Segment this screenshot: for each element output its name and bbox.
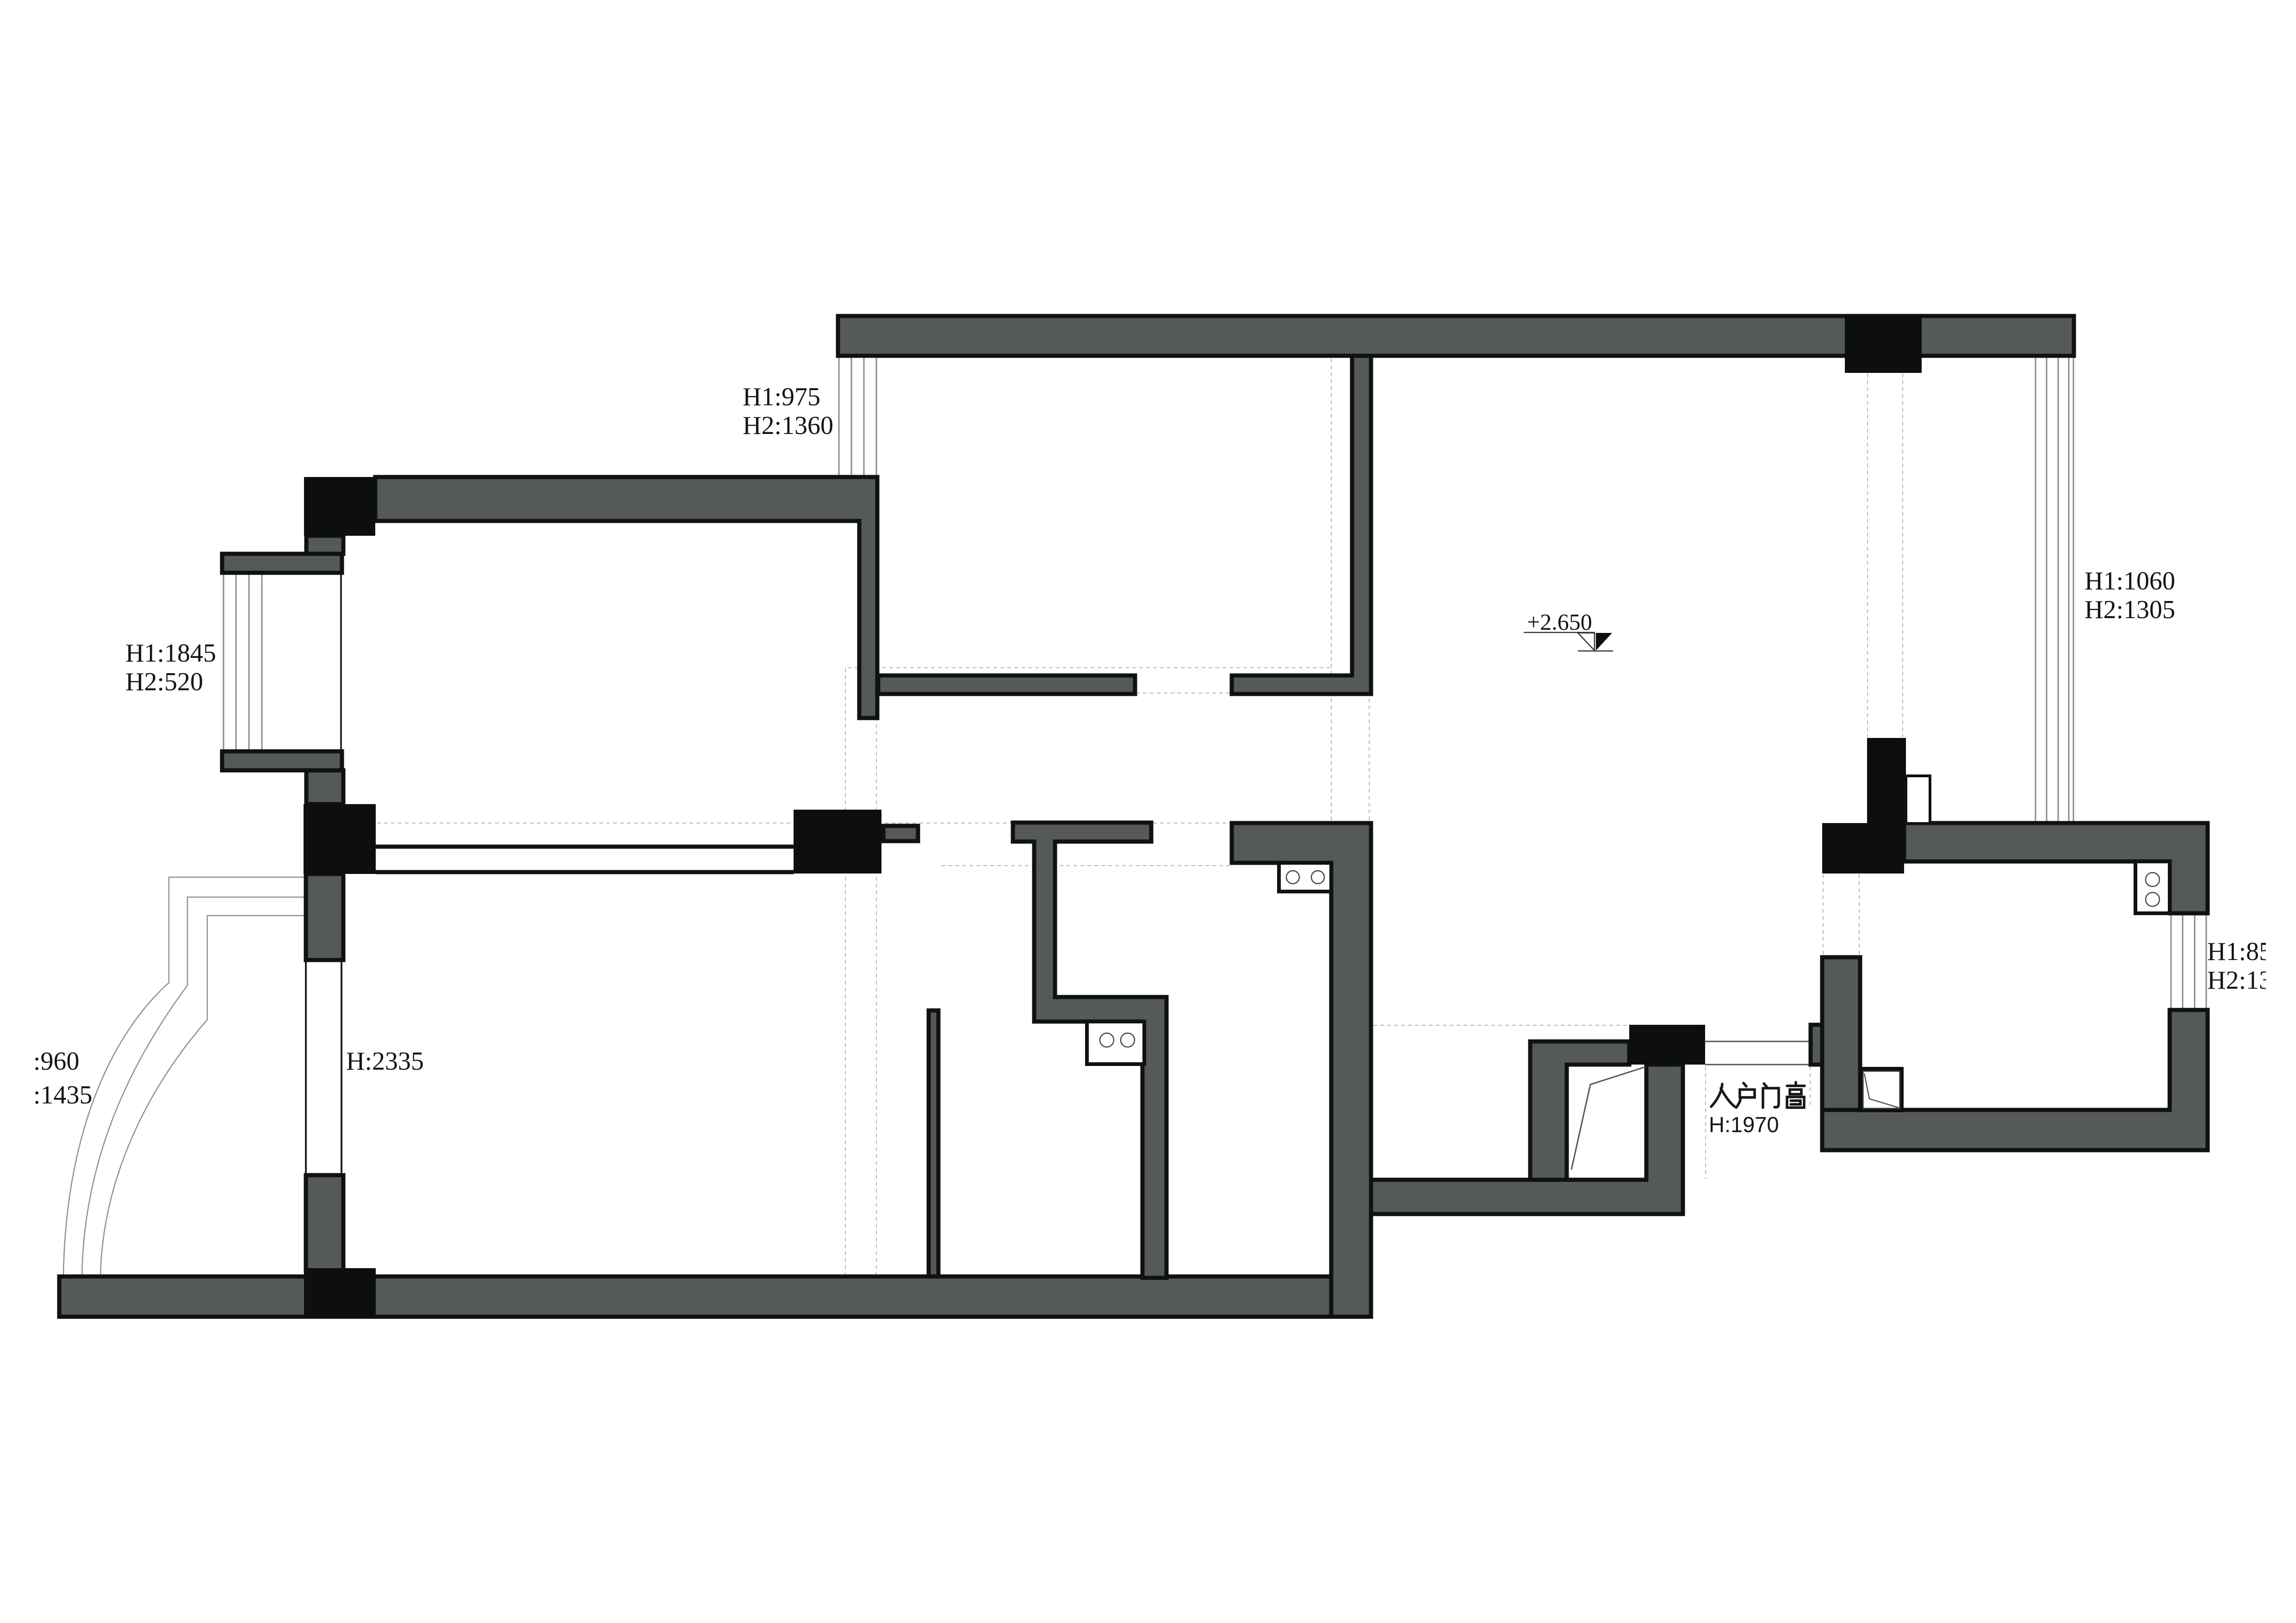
svg-text:H:1970: H:1970	[1709, 1112, 1779, 1137]
svg-text:H1:1060: H1:1060	[2085, 567, 2175, 595]
svg-text::960: :960	[33, 1047, 80, 1076]
svg-text:H1:975: H1:975	[743, 383, 820, 411]
svg-text:H1:1845: H1:1845	[125, 639, 216, 668]
svg-text::1435: :1435	[33, 1081, 93, 1109]
svg-text:H:2335: H:2335	[346, 1047, 424, 1076]
svg-text:H2:1305: H2:1305	[2085, 595, 2175, 624]
svg-text:+2.650: +2.650	[1527, 609, 1592, 635]
svg-text:H2:520: H2:520	[125, 668, 203, 696]
svg-text:H2:1360: H2:1360	[743, 411, 833, 440]
